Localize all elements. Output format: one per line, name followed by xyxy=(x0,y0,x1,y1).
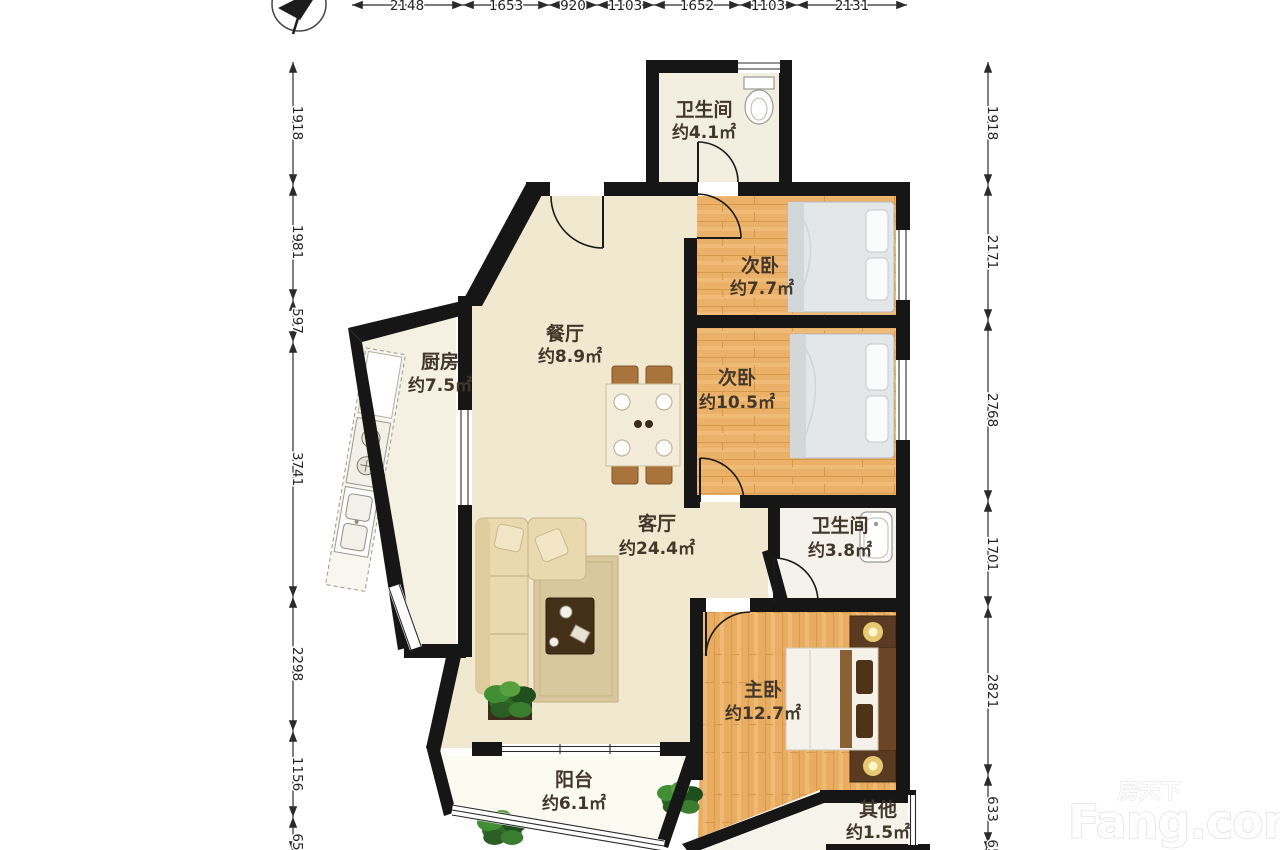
dim-left-5: 1156 xyxy=(289,757,305,791)
room-area-bath-top: 约4.1㎡ xyxy=(672,122,736,143)
bed-double xyxy=(788,202,894,312)
room-area-other: 约1.5㎡ xyxy=(846,822,910,843)
dim-right-1: 2171 xyxy=(984,235,1000,269)
coffee-table xyxy=(546,598,594,654)
dim-right-4: 2821 xyxy=(984,674,1000,708)
dim-right-6: 65 xyxy=(984,839,1000,850)
dining-set xyxy=(606,366,680,484)
dining-chair xyxy=(612,366,638,386)
floorplan-canvas: 卫生间 约4.1㎡ 次卧 约7.7㎡ 次卧 约10.5㎡ 餐厅 约8.9㎡ 厨房… xyxy=(0,0,1280,850)
dim-left-1: 1981 xyxy=(289,225,305,259)
dim-top-1: 1653 xyxy=(489,0,523,14)
room-area-dining: 约8.9㎡ xyxy=(538,346,602,367)
room-area-kitchen: 约7.5㎡ xyxy=(408,375,472,396)
headboard xyxy=(876,648,896,750)
dim-top-2: 920 xyxy=(560,0,586,14)
dim-top-4: 1652 xyxy=(680,0,714,14)
sofa-pillow xyxy=(494,524,524,553)
dim-right-0: 1918 xyxy=(984,106,1000,140)
dim-top-6: 2131 xyxy=(835,0,869,14)
pillow xyxy=(856,660,873,694)
floorplan-page: 卫生间 约4.1㎡ 次卧 约7.7㎡ 次卧 约10.5㎡ 餐厅 约8.9㎡ 厨房… xyxy=(0,0,1280,850)
dim-top-3: 1103 xyxy=(608,0,642,14)
room-area-bath-2: 约3.8㎡ xyxy=(808,540,872,561)
toilet xyxy=(744,77,774,124)
room-area-balcony: 约6.1㎡ xyxy=(542,793,606,814)
dimensions-top: 2148 1653 920 1103 1652 1103 2131 xyxy=(352,0,907,14)
room-label-bedroom-2b: 次卧 xyxy=(718,366,756,389)
dim-right-2: 2768 xyxy=(984,393,1000,427)
room-label-dining: 餐厅 xyxy=(546,322,584,345)
room-label-bath-2: 卫生间 xyxy=(811,514,868,537)
fang-watermark: 房天下 Fang.com xyxy=(1068,779,1280,849)
room-area-master: 约12.7㎡ xyxy=(725,703,801,724)
dining-chair xyxy=(646,366,672,386)
dining-chair xyxy=(646,464,672,484)
room-area-living: 约24.4㎡ xyxy=(619,538,695,559)
pillow xyxy=(856,704,873,738)
room-label-bath-top: 卫生间 xyxy=(675,98,732,121)
corridor-floor xyxy=(684,502,768,598)
dim-right-3: 1701 xyxy=(984,537,1000,571)
room-label-bedroom-2a: 次卧 xyxy=(741,254,779,277)
dim-right-5: 633 xyxy=(984,796,1000,822)
dimensions-left: 1918 1981 597 3741 2298 1156 65 xyxy=(289,62,305,850)
dim-left-0: 1918 xyxy=(289,106,305,140)
dim-top-5: 1103 xyxy=(751,0,785,14)
room-label-other: 其他 xyxy=(859,798,897,821)
dim-left-3: 3741 xyxy=(289,452,305,486)
room-area-bedroom-2a: 约7.7㎡ xyxy=(730,278,794,299)
dimensions-right: 1918 2171 2768 1701 2821 633 65 xyxy=(984,62,1000,850)
room-label-balcony: 阳台 xyxy=(555,768,593,791)
room-area-bedroom-2b: 约10.5㎡ xyxy=(699,392,775,413)
dim-left-2: 597 xyxy=(289,308,305,334)
dim-left-4: 2298 xyxy=(289,647,305,681)
bed-double xyxy=(790,334,894,458)
room-label-kitchen: 厨房 xyxy=(421,350,459,373)
room-label-living: 客厅 xyxy=(638,512,676,535)
dim-left-6: 65 xyxy=(289,833,305,850)
watermark-en: Fang.com xyxy=(1068,795,1280,849)
dim-top-0: 2148 xyxy=(390,0,424,14)
room-label-master: 主卧 xyxy=(744,679,782,701)
dining-chair xyxy=(612,464,638,484)
north-arrow-icon xyxy=(272,0,326,34)
